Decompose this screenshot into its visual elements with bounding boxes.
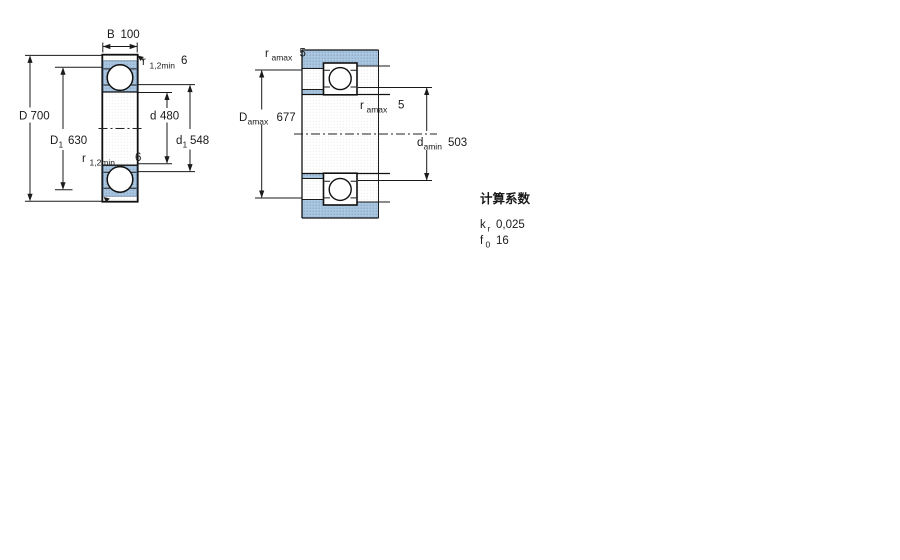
dim-r12-top: r 1,2min 6 <box>138 55 188 71</box>
dim-Damax-sub: amax <box>248 117 270 127</box>
dim-d1-label: d <box>176 135 182 147</box>
ball-bottom <box>107 167 133 193</box>
dim-ramax-mid-label: r <box>360 100 364 112</box>
dim-ramax-top: r amax 5 <box>265 48 306 63</box>
factor-f0-symbol: f <box>480 235 484 247</box>
dim-ramax-top-label: r <box>265 48 269 60</box>
factor-row-f0: f 0 16 <box>480 235 509 250</box>
dim-r-bottom-value: 6 <box>135 152 141 164</box>
factor-f0-value: 16 <box>496 235 509 247</box>
calculation-factors-title: 计算系数 <box>480 191 531 206</box>
dim-damin-value: 503 <box>448 137 467 149</box>
dim-d-label: d <box>150 111 156 123</box>
dim-d1-value: 548 <box>190 135 209 147</box>
factor-f0-sub: 0 <box>486 240 491 250</box>
dim-r-top-value: 6 <box>181 55 187 67</box>
dim-D: D 700 <box>19 55 102 201</box>
factor-kr-sub: r <box>488 224 491 234</box>
bearing-datasheet-drawing: B 100 r 1,2min 6 D 700 D 1 630 <box>0 0 900 560</box>
shaft-shoulder-top <box>302 90 324 95</box>
dim-damin-sub: amin <box>424 142 443 152</box>
dim-Damax-label: D <box>239 112 247 124</box>
dim-d-value: 480 <box>160 111 179 123</box>
shaft-shoulder-bottom <box>302 174 324 179</box>
dim-r-bottom-sub: 1,2min <box>90 158 116 168</box>
dim-r-top-sub: 1,2min <box>150 61 176 71</box>
factor-kr-symbol: k <box>480 219 486 231</box>
factor-row-kr: k r 0,025 <box>480 219 525 234</box>
dim-Damax-value: 677 <box>277 112 296 124</box>
dim-Damax: D amax 677 <box>239 70 302 198</box>
dim-d1-sub: 1 <box>183 140 188 150</box>
dim-d1: d 1 548 <box>138 85 209 172</box>
ball-bottom-right-figure <box>329 178 351 200</box>
dim-d: d 480 <box>138 93 179 164</box>
dim-B-value: 100 <box>121 29 140 41</box>
dim-B: B 100 <box>103 29 140 53</box>
technical-drawing-canvas: B 100 r 1,2min 6 D 700 D 1 630 <box>0 0 900 560</box>
dim-D1-sub: 1 <box>59 140 64 150</box>
dim-D1-value: 630 <box>68 135 87 147</box>
factor-kr-value: 0,025 <box>496 219 525 231</box>
dim-D-value: 700 <box>31 111 50 123</box>
dim-ramax-mid-value: 5 <box>398 100 404 112</box>
dim-r-top-label: r <box>142 56 146 68</box>
figure-bearing-cross-section: B 100 r 1,2min 6 D 700 D 1 630 <box>19 29 209 202</box>
figure-abutment-dimensions: r amax 5 D amax 677 r amax 5 d amin 503 <box>239 48 467 219</box>
dim-D1: D 1 630 <box>50 67 102 189</box>
dim-r-bottom-label: r <box>82 153 86 165</box>
dim-ramax-top-sub: amax <box>272 53 294 63</box>
dim-ramax-mid-sub: amax <box>367 105 389 115</box>
ball-top-right-figure <box>329 68 351 90</box>
dim-damin-label: d <box>417 137 423 149</box>
dim-B-label: B <box>107 29 115 41</box>
ball-top <box>107 65 133 91</box>
dim-D-label: D <box>19 111 27 123</box>
dim-ramax-top-value: 5 <box>300 48 306 60</box>
calculation-factors: 计算系数 k r 0,025 f 0 16 <box>480 191 531 250</box>
dim-D1-label: D <box>50 135 58 147</box>
